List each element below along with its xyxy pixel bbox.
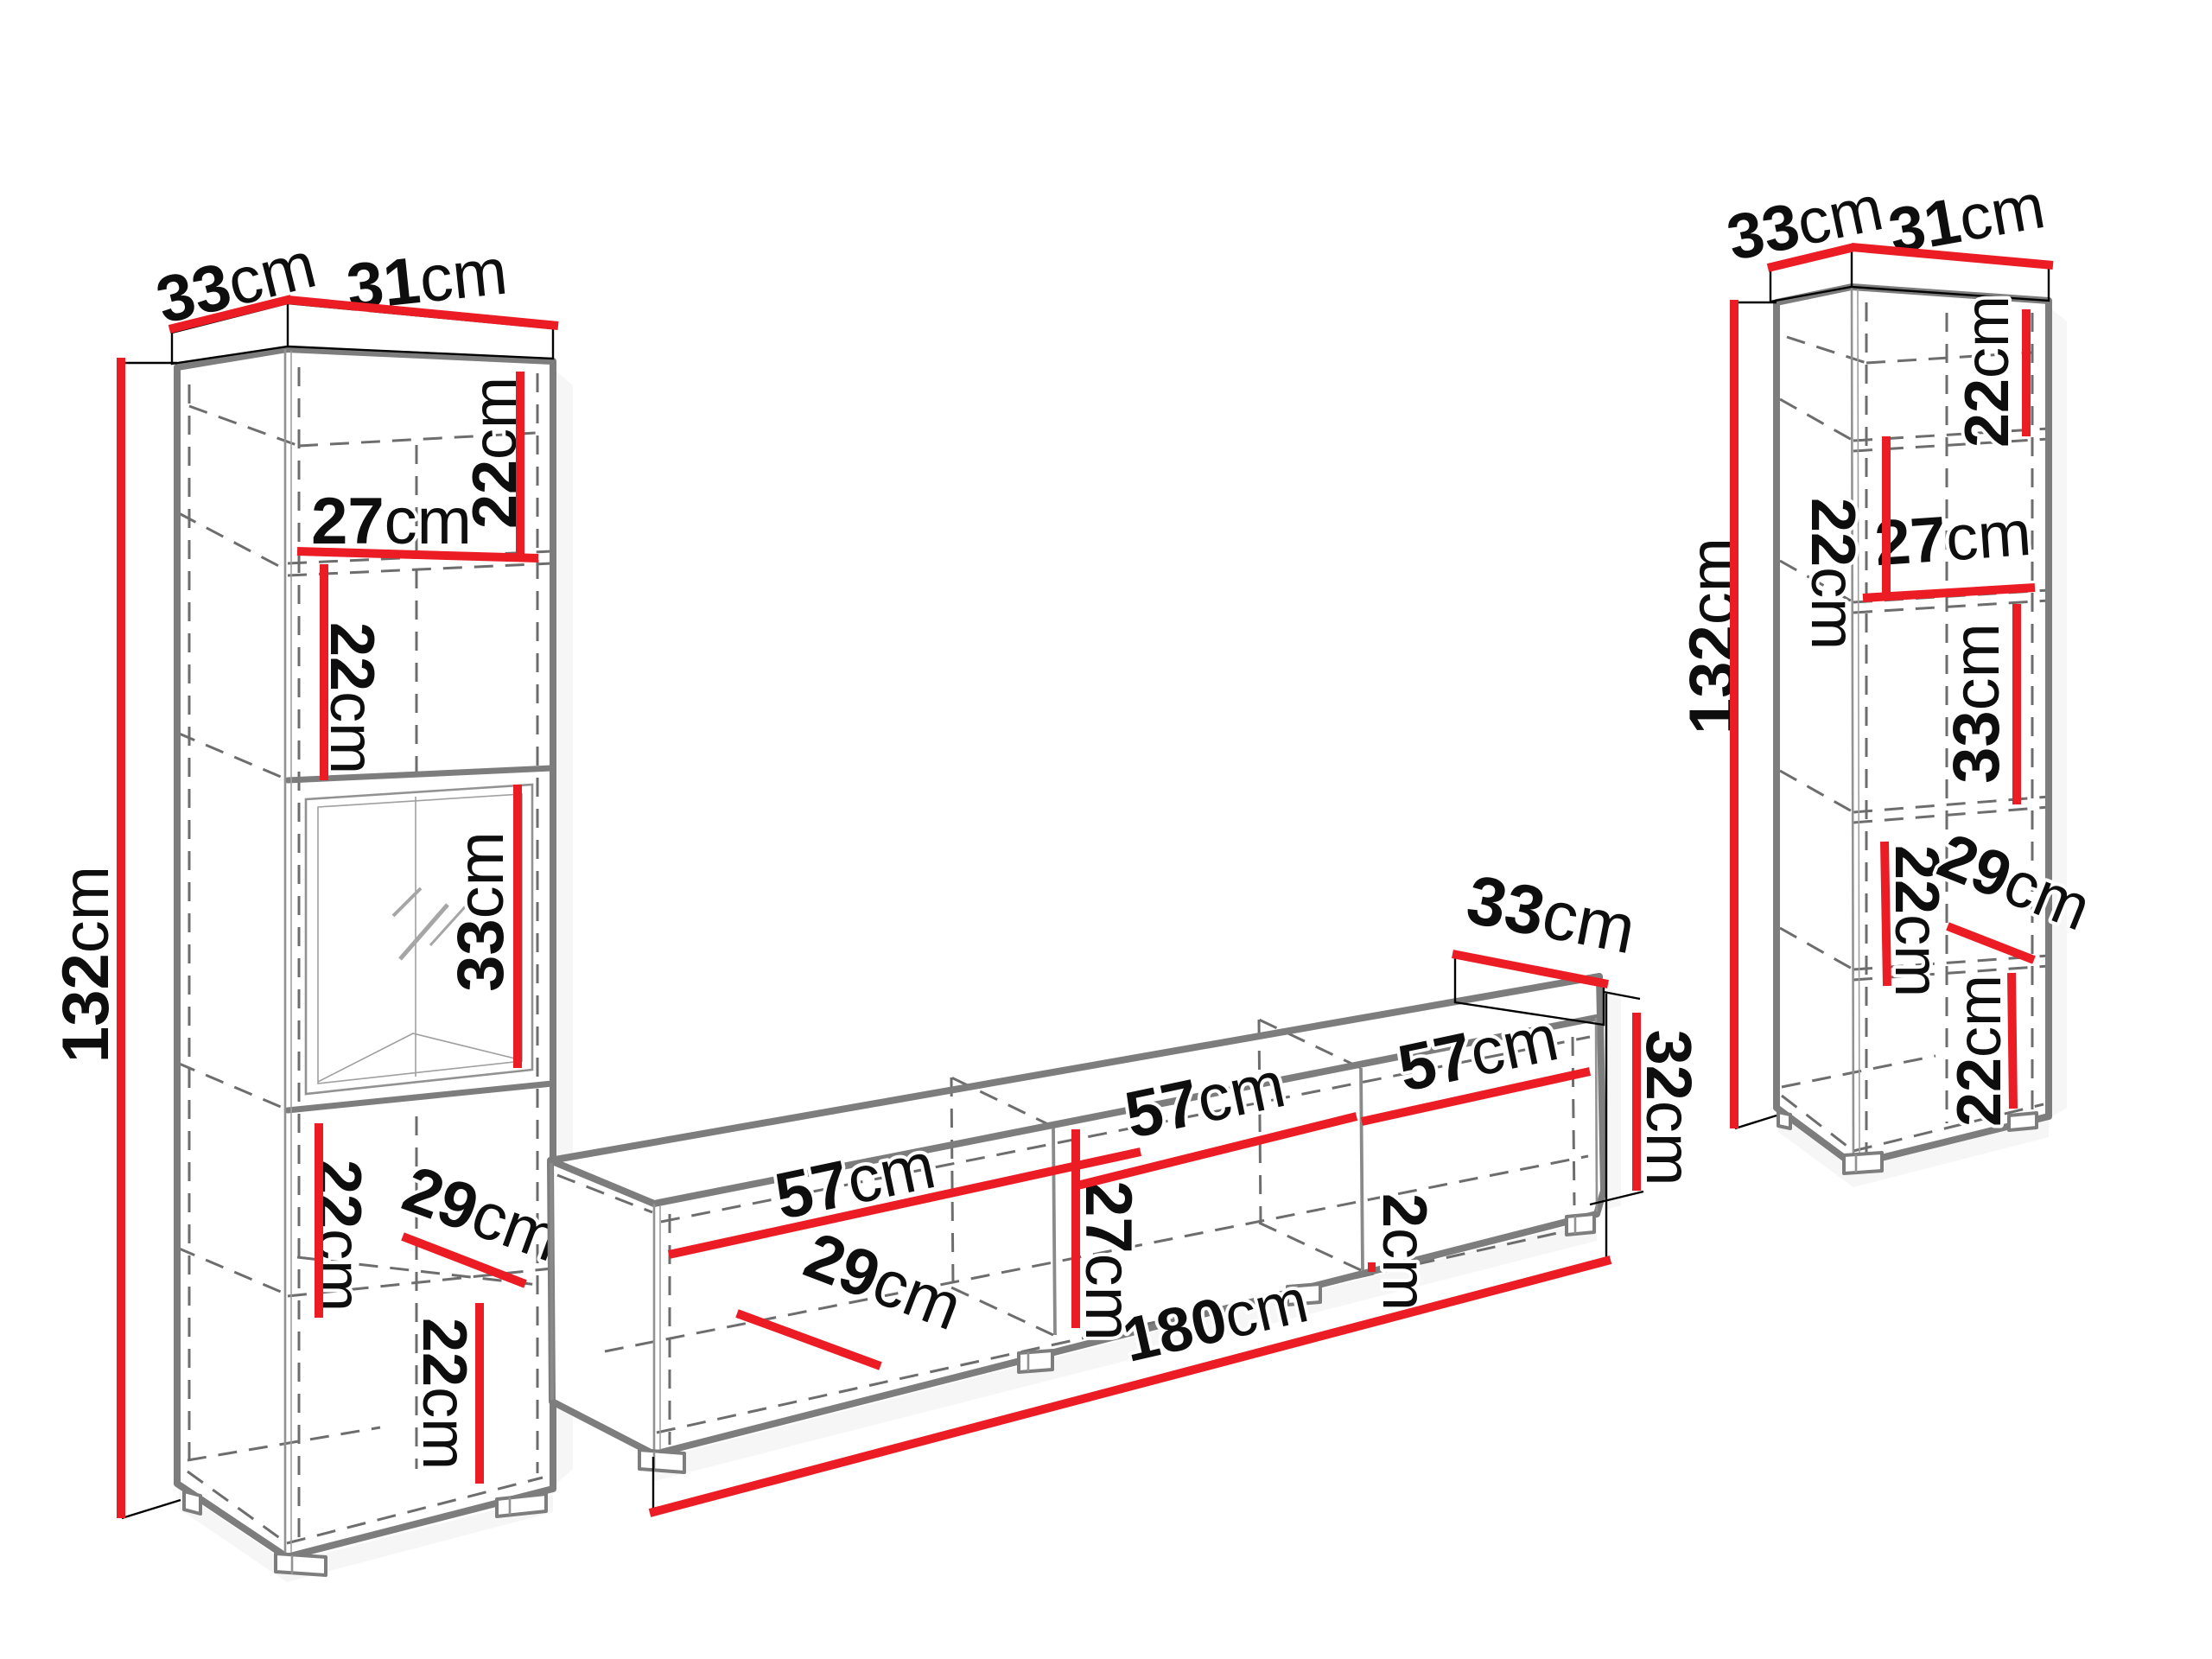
svg-text:22cm: 22cm: [410, 1318, 479, 1470]
svg-text:132cm: 132cm: [1676, 537, 1750, 734]
svg-text:132cm: 132cm: [49, 866, 123, 1063]
svg-text:22cm: 22cm: [1953, 296, 2022, 448]
svg-text:27cm: 27cm: [311, 485, 472, 558]
svg-text:27cm: 27cm: [1872, 497, 2033, 579]
svg-text:33cm: 33cm: [444, 831, 518, 992]
svg-text:2cm: 2cm: [1370, 1193, 1439, 1311]
svg-text:33cm: 33cm: [1940, 623, 2013, 784]
svg-text:22cm: 22cm: [1945, 975, 2014, 1127]
svg-text:32cm: 32cm: [1633, 1030, 1705, 1186]
svg-text:22cm: 22cm: [1798, 498, 1867, 650]
